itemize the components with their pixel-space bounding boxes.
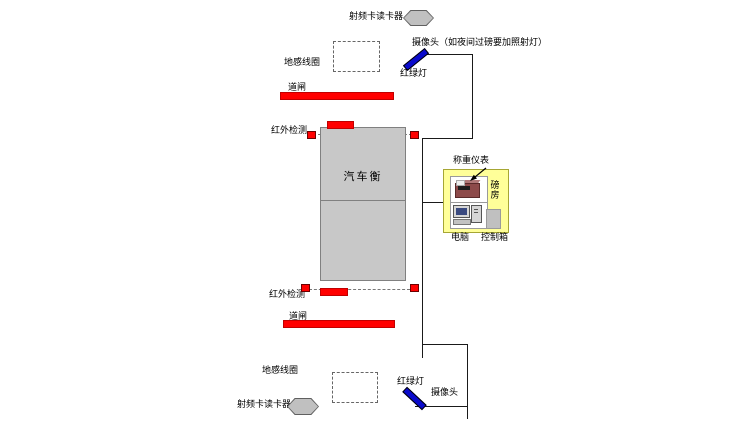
infrared-sensor-bottom-right	[410, 284, 419, 292]
computer-label: 电脑	[451, 234, 469, 244]
ground-coil-label-bottom: 地感线圈	[262, 367, 298, 377]
infrared-label-bottom: 红外检测	[269, 291, 305, 301]
cable-upper-horizontal	[422, 138, 473, 139]
truck-scale-label: 汽车衡	[321, 168, 405, 184]
weigh-room-label: 磅房	[490, 181, 500, 201]
weighing-indicator-label: 称重仪表	[453, 157, 489, 167]
infrared-sensor-bottom-left	[301, 284, 310, 292]
barrier-gate-icon-bottom	[283, 320, 395, 328]
traffic-light-label-top: 红绿灯	[400, 70, 427, 80]
cable-to-weigh-room	[422, 202, 444, 203]
camera-label-top: 摄像头（如夜间过磅要加照射灯）	[412, 39, 547, 49]
control-box-icon	[486, 209, 501, 229]
ground-coil-icon-bottom	[332, 372, 378, 403]
traffic-light-label-bottom: 红绿灯	[397, 378, 424, 388]
barrier-gate-icon-top	[280, 92, 394, 100]
infrared-label-top: 红外检测	[271, 127, 307, 137]
cable-bottom-right-vertical	[467, 344, 468, 419]
traffic-light-icon-top	[403, 48, 429, 71]
weighbridge-system-diagram: 射频卡读卡器 摄像头（如夜间过磅要加照射灯） 红绿灯 地感线圈 道闸 红外检测 …	[0, 0, 746, 428]
ground-coil-label-top: 地感线圈	[284, 59, 320, 69]
rfid-reader-icon-bottom	[287, 398, 319, 415]
rfid-reader-label-bottom: 射频卡读卡器	[237, 401, 291, 411]
control-box-label: 控制箱	[481, 234, 508, 244]
truck-scale-platform: 汽车衡	[320, 127, 406, 281]
rfid-reader-icon-top	[403, 10, 434, 26]
computer-monitor-icon	[453, 205, 470, 218]
infrared-sensor-top-left	[307, 131, 316, 139]
cable-top-right-vertical	[472, 54, 473, 139]
camera-label-bottom: 摄像头	[431, 389, 458, 399]
scale-section-divider	[321, 200, 405, 201]
ground-coil-icon-top	[333, 41, 380, 72]
rfid-reader-label-top: 射频卡读卡器	[349, 13, 403, 23]
infrared-emitter-bar-top	[327, 121, 354, 129]
cable-top-camera-horizontal	[421, 54, 473, 55]
weighing-indicator-display	[458, 186, 470, 190]
indicator-pointer-arrow	[466, 167, 488, 183]
cable-lower-horizontal	[422, 344, 468, 345]
computer-tower-icon	[471, 205, 482, 223]
weighing-indicator-ticket	[456, 180, 465, 186]
infrared-sensor-top-right	[410, 131, 419, 139]
computer-keyboard-icon	[453, 219, 471, 225]
infrared-emitter-bar-bottom	[320, 288, 348, 296]
cable-main-vertical	[422, 138, 423, 358]
